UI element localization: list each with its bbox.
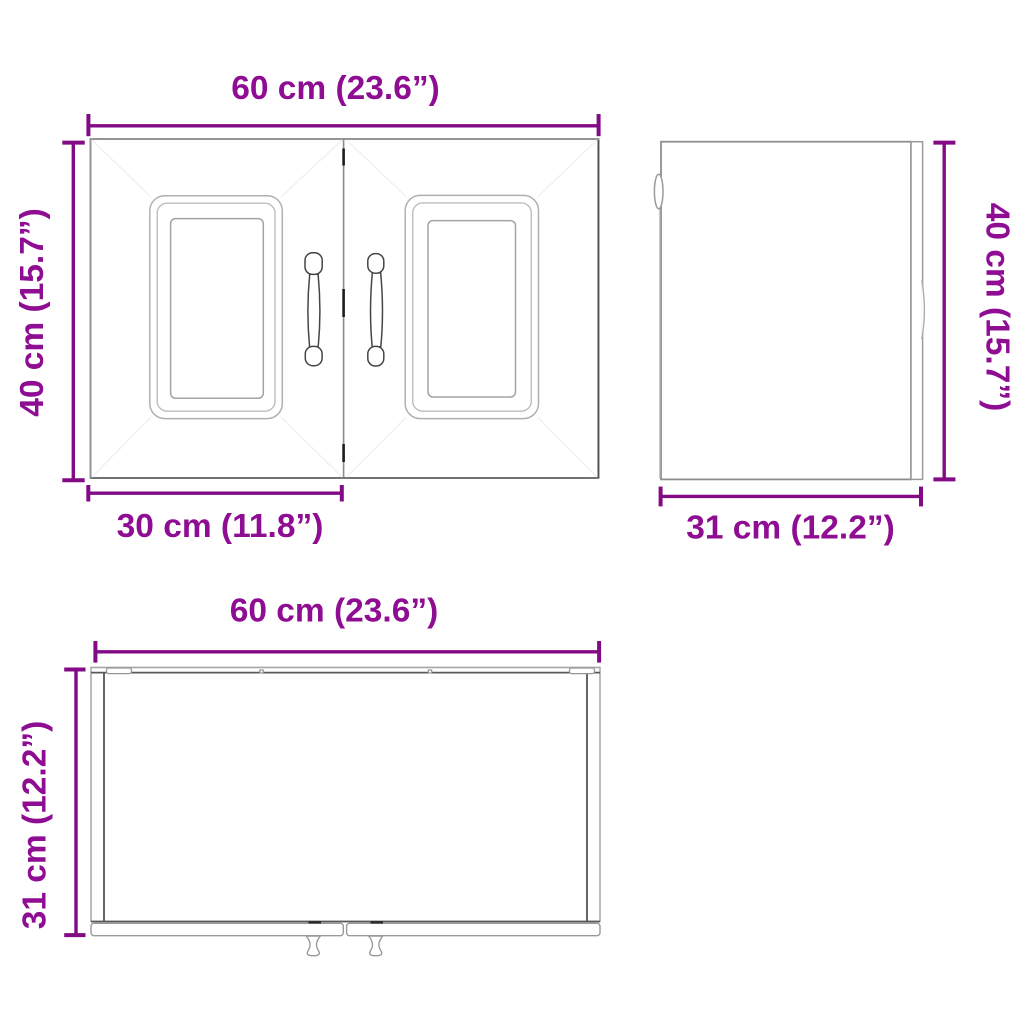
svg-text:31 cm (12.2”): 31 cm (12.2”)	[686, 510, 895, 547]
svg-text:40 cm (15.7”): 40 cm (15.7”)	[14, 208, 51, 417]
svg-text:60 cm (23.6”): 60 cm (23.6”)	[230, 593, 439, 630]
svg-text:60 cm (23.6”): 60 cm (23.6”)	[231, 70, 440, 107]
svg-text:31 cm (12.2”): 31 cm (12.2”)	[17, 721, 54, 930]
svg-text:40 cm (15.7”): 40 cm (15.7”)	[979, 203, 1016, 412]
svg-text:30 cm (11.8”): 30 cm (11.8”)	[117, 508, 324, 545]
